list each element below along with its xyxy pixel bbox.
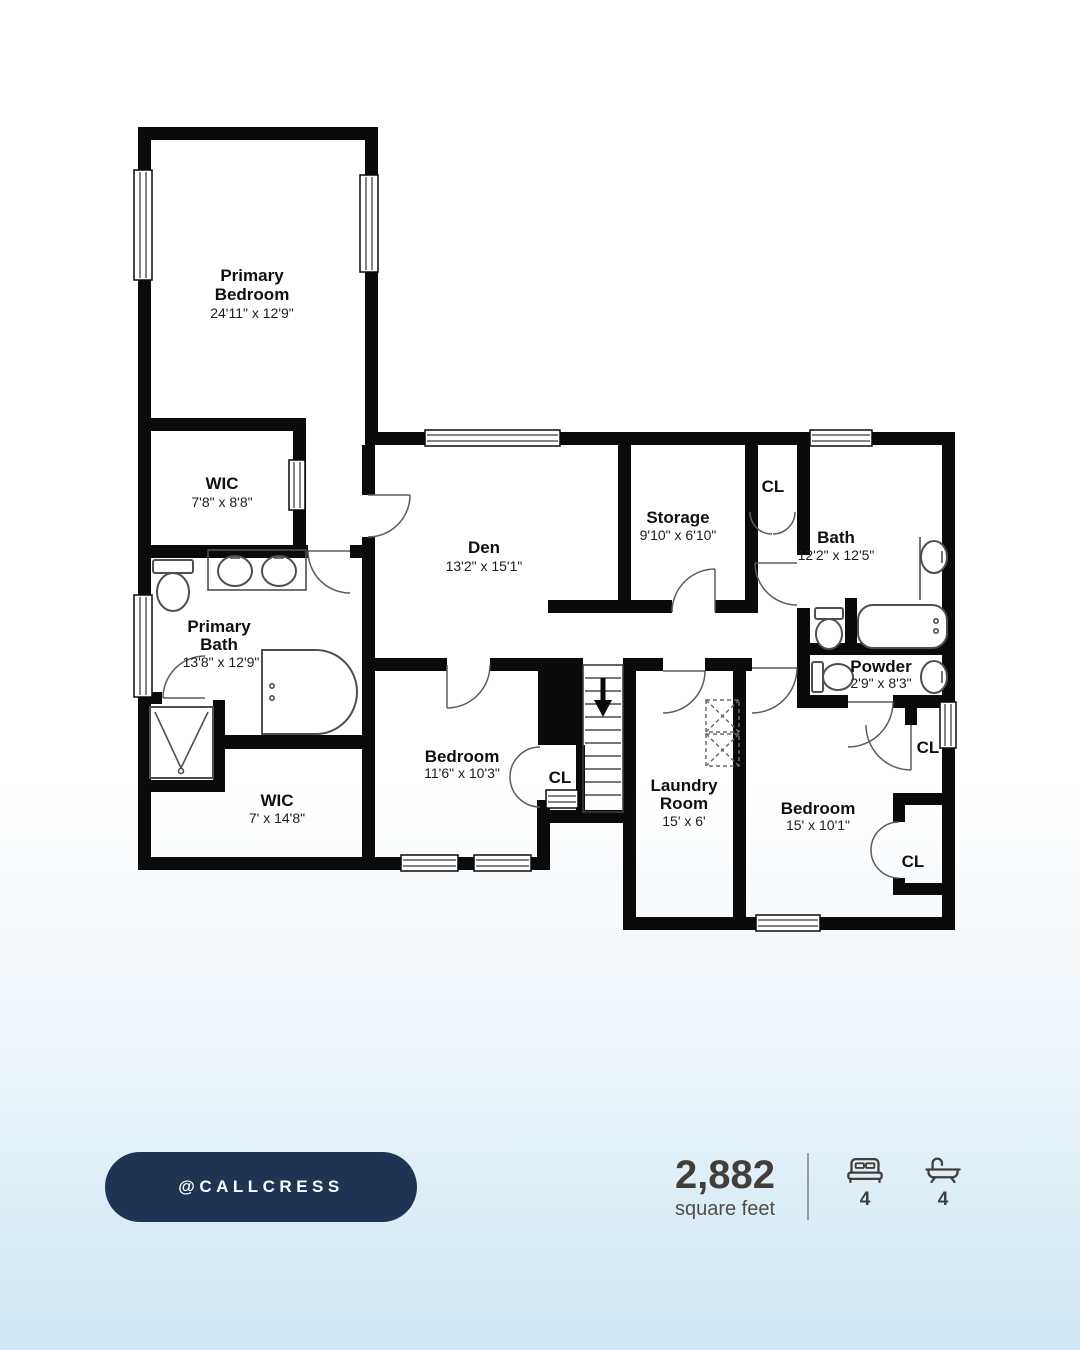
laundry-label: Laundry [650, 776, 718, 795]
window [810, 430, 872, 446]
primary-bedroom-label: Primary [220, 266, 284, 285]
door-arc [308, 551, 350, 593]
stairs-down-arrow-icon [594, 678, 612, 717]
storage-label: Storage [646, 508, 709, 527]
wic-upper-label: WIC [205, 474, 238, 493]
toilet-icon [153, 560, 193, 611]
door-arc [663, 671, 705, 713]
closet-builtin [289, 460, 305, 510]
door-arc [848, 702, 893, 747]
shower-icon [150, 707, 213, 778]
laundry-label-2: Room [660, 794, 708, 813]
beds-count: 4 [833, 1189, 897, 1211]
bathtub-icon [858, 605, 947, 648]
bathtub-icon [923, 1156, 963, 1183]
footer-divider [807, 1153, 809, 1220]
door-arc [752, 668, 797, 713]
closet-label-center: CL [549, 768, 572, 787]
powder-label: Powder [850, 657, 912, 676]
bedroom-center-label: Bedroom [425, 747, 500, 766]
beds-stat: 4 [833, 1156, 897, 1211]
door-arc [368, 495, 410, 537]
window [425, 430, 560, 446]
window [134, 170, 152, 280]
wic-upper-dims: 7'8" x 8'8" [191, 494, 252, 510]
window [474, 855, 531, 871]
wic-lower-label: WIC [260, 791, 293, 810]
square-footage-label: square feet [640, 1198, 810, 1221]
primary-bedroom-dims: 24'11" x 12'9" [210, 305, 294, 321]
square-footage-value: 2,882 [640, 1154, 810, 1196]
primary-bedroom-label-2: Bedroom [215, 285, 290, 304]
closet-label-bottom: CL [902, 852, 925, 871]
staircase [583, 665, 623, 812]
bath-dims: 12'2" x 12'5" [798, 547, 875, 563]
closet-label-top: CL [762, 477, 785, 496]
window [360, 175, 378, 272]
wic-lower-dims: 7' x 14'8" [249, 810, 305, 826]
bed-icon [845, 1156, 885, 1183]
bedroom-center-dims: 11'6" x 10'3" [424, 765, 500, 781]
closet-label-right: CL [917, 738, 940, 757]
window [940, 702, 956, 748]
bedroom-right-dims: 15' x 10'1" [786, 817, 850, 833]
den-dims: 13'2" x 15'1" [446, 558, 523, 574]
powder-dims: 2'9" x 8'3" [850, 675, 911, 691]
door-arc [866, 725, 911, 770]
double-door-arcs [510, 747, 540, 807]
window [134, 595, 152, 697]
baths-count: 4 [911, 1189, 975, 1211]
toilet-icon [812, 662, 853, 692]
floor-plan: Primary Bedroom 24'11" x 12'9" WIC 7'8" … [0, 0, 1080, 1350]
bath-label: Bath [817, 528, 855, 547]
door-arc [755, 563, 797, 605]
brand-handle-pill: @CALLCRESS [105, 1152, 417, 1222]
storage-dims: 9'10" x 6'10" [640, 527, 717, 543]
toilet-icon [815, 608, 843, 649]
door-arc [447, 665, 490, 708]
closet-shelf [546, 790, 578, 808]
bedroom-right-label: Bedroom [781, 799, 856, 818]
square-footage: 2,882 square feet [640, 1154, 810, 1221]
sink-icon [921, 661, 947, 693]
baths-stat: 4 [911, 1156, 975, 1211]
brand-handle-text: @CALLCRESS [178, 1177, 343, 1197]
den-label: Den [468, 538, 500, 557]
primary-bath-label-2: Bath [200, 635, 238, 654]
double-door-arcs [871, 822, 899, 878]
window [756, 915, 820, 931]
door-arc [672, 569, 715, 612]
primary-bath-dims: 13'8" x 12'9" [183, 654, 260, 670]
primary-bath-label: Primary [187, 617, 251, 636]
bathtub-icon [262, 650, 357, 734]
window [401, 855, 458, 871]
laundry-dims: 15' x 6' [662, 813, 705, 829]
